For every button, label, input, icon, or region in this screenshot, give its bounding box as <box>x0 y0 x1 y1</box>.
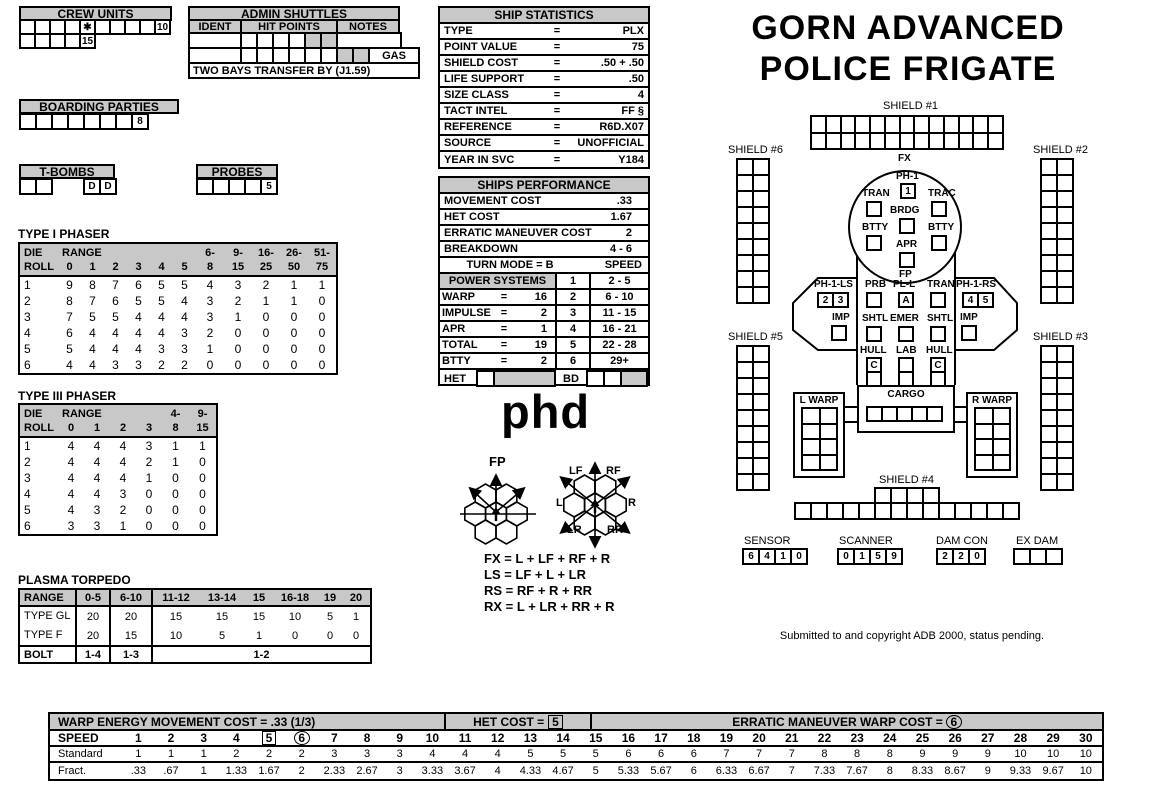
shield-box[interactable] <box>738 192 752 206</box>
shield-box[interactable] <box>738 459 752 473</box>
fract-values: .33.6711.331.6722.332.6733.333.6744.334.… <box>122 763 1102 779</box>
speed-cell: 5 <box>579 747 612 761</box>
shield-box[interactable] <box>901 117 914 132</box>
performance-rows: MOVEMENT COST.33HET COST1.67ERRATIC MANE… <box>440 194 648 258</box>
shield-box[interactable] <box>821 440 837 454</box>
shield-box[interactable] <box>1004 504 1018 518</box>
speed-cell: 3.67 <box>449 763 482 779</box>
stat-row: BREAKDOWN4 - 6 <box>440 242 648 258</box>
speed-cell: 3 <box>318 747 351 761</box>
shield-box[interactable] <box>1058 224 1072 238</box>
plasma-wide-header: 11-12 13-14 15 16-18 19 20 <box>151 590 370 605</box>
speed-cell: 5 <box>579 763 612 779</box>
speed-cell: 6 <box>612 747 645 761</box>
shield-box[interactable] <box>754 411 768 425</box>
emer-label: EMER <box>890 314 919 324</box>
speed-cell: 4 <box>449 747 482 761</box>
shield-box[interactable] <box>876 489 890 502</box>
trac-label: TRAC <box>928 189 956 199</box>
shield-box[interactable] <box>1058 395 1072 409</box>
tran-box[interactable] <box>866 201 882 217</box>
shield-box[interactable] <box>738 240 752 254</box>
scanner-label: SCANNER <box>839 536 893 547</box>
speed-cell: 2 <box>220 747 253 761</box>
speed-cell: 9 <box>906 747 939 761</box>
tran-mid-box[interactable] <box>930 292 946 308</box>
rwarp-label: R WARP <box>968 396 1016 406</box>
speed-cell: 2 <box>253 747 286 761</box>
speed-cell: 7 <box>743 747 776 761</box>
exdam-label: EX DAM <box>1016 536 1058 547</box>
shield-box[interactable] <box>1058 192 1072 206</box>
shield-box[interactable] <box>754 176 768 190</box>
shield-box[interactable] <box>871 117 884 132</box>
speed-cell: 5.33 <box>612 763 645 779</box>
bolt-0-5: 1-4 <box>75 647 109 662</box>
prb-box[interactable] <box>866 292 882 308</box>
track-box[interactable]: 10 <box>154 19 171 35</box>
speed-cell: 21 <box>775 731 808 745</box>
shield-box[interactable] <box>994 409 1010 423</box>
erratic-header: ERRATIC MANEUVER WARP COST = 6 <box>592 714 1102 729</box>
arc-lr-label: LR <box>567 525 582 535</box>
shield-box[interactable] <box>1058 459 1072 473</box>
shield-box[interactable] <box>940 504 954 518</box>
shield-box[interactable] <box>842 134 855 149</box>
imp-left-label: IMP <box>832 313 850 323</box>
shield-box[interactable] <box>1042 475 1056 489</box>
shield-box[interactable] <box>754 208 768 222</box>
brdg-box[interactable] <box>899 218 915 234</box>
shield-box[interactable] <box>1042 160 1056 174</box>
hull-right-label: HULL <box>926 346 953 356</box>
lwarp-label: L WARP <box>795 396 843 406</box>
shield-box[interactable] <box>738 395 752 409</box>
emer-box[interactable] <box>898 326 914 342</box>
ship-statistics-title: SHIP STATISTICS <box>440 8 648 24</box>
track-box[interactable] <box>35 178 53 195</box>
shield-box[interactable] <box>924 489 938 502</box>
shield-box[interactable] <box>754 395 768 409</box>
speed-cell: 5.67 <box>645 763 678 779</box>
track-box[interactable] <box>926 406 943 422</box>
speed-cell: 8 <box>841 747 874 761</box>
plasma-col-6-10: 6-10 <box>109 590 151 605</box>
shield-box[interactable] <box>1042 411 1056 425</box>
speed-cell: 6 <box>677 763 710 779</box>
shield-box[interactable] <box>901 134 914 149</box>
shield-box[interactable] <box>754 379 768 393</box>
shield-box[interactable] <box>1058 379 1072 393</box>
value: 10 <box>273 611 317 623</box>
speed-cell: 2 <box>285 763 318 779</box>
shield-box[interactable] <box>738 347 752 361</box>
speed-range-row: 416 - 21 <box>557 322 648 338</box>
speed-cell: 28 <box>1004 731 1037 745</box>
imp-right-box[interactable] <box>961 325 977 341</box>
apr-box[interactable] <box>899 252 915 268</box>
shield-box[interactable] <box>1058 363 1072 377</box>
speed-cell: 17 <box>645 731 678 745</box>
speed-cell: 8.67 <box>939 763 972 779</box>
shield3-label: SHIELD #3 <box>1033 332 1088 343</box>
speed-cell: 9 <box>383 731 416 745</box>
boarding-parties-row: 8 <box>19 113 147 130</box>
btty-left-box[interactable] <box>866 235 882 251</box>
speed-cell: 9 <box>971 747 1004 761</box>
shield-box[interactable] <box>796 504 810 518</box>
shield-box[interactable] <box>812 117 825 132</box>
btty-right-box[interactable] <box>931 235 947 251</box>
shield-box[interactable] <box>1058 288 1072 302</box>
bolt-rest: 1-2 <box>151 647 370 662</box>
speed-cell: 4 <box>481 763 514 779</box>
shield-box[interactable] <box>856 134 869 149</box>
track-box[interactable]: 5 <box>260 178 278 195</box>
shield-box[interactable] <box>1058 475 1072 489</box>
stat-row: SHIELD COST=.50 + .50 <box>440 56 648 72</box>
shield-box[interactable] <box>827 117 840 132</box>
shield-box[interactable] <box>754 160 768 174</box>
value: 20 <box>125 611 137 623</box>
power-systems-column: POWER SYSTEMS WARP=16IMPULSE=2APR=1TOTAL… <box>440 274 557 370</box>
phaser-table-header: DIERANGE4-9-ROLL0123815 <box>20 405 216 438</box>
ship-title: GORN ADVANCED POLICE FRIGATE <box>728 8 1088 90</box>
track-box[interactable]: 0 <box>790 548 808 565</box>
pl-l-label: PL-L <box>893 280 915 290</box>
arc-rf-label: RF <box>606 466 621 476</box>
speed-cell: 8 <box>808 747 841 761</box>
shield-box[interactable] <box>930 134 943 149</box>
shield-box[interactable] <box>908 489 922 502</box>
track-box[interactable]: 0 <box>968 548 986 565</box>
ph1-ls-label: PH-1-LS <box>814 280 853 290</box>
crew-units-row2: 15 <box>19 33 94 49</box>
value: 15 <box>245 611 273 623</box>
exdam-track <box>1013 548 1061 565</box>
shield-box[interactable] <box>738 224 752 238</box>
shield-box[interactable] <box>915 134 928 149</box>
shield1-grid <box>810 115 1004 150</box>
ship-title-line1: GORN ADVANCED <box>728 8 1088 49</box>
plasma-bolt-row: BOLT 1-4 1-3 1-2 <box>20 645 370 662</box>
type3-phaser-table: DIERANGE4-9-ROLL012381514443112444210344… <box>18 403 218 536</box>
shield-box[interactable] <box>1042 176 1056 190</box>
plasma-col-0-5: 0-5 <box>75 590 109 605</box>
shield-box[interactable] <box>876 504 890 518</box>
plasma-col-16-18: 16-18 <box>273 592 317 604</box>
boarding-parties-header: BOARDING PARTIES <box>19 99 179 114</box>
arc-formulas: FX = L + LF + RF + R LS = LF + L + LR RS… <box>484 551 615 615</box>
shield-box[interactable] <box>1042 272 1056 286</box>
shield-box[interactable] <box>842 117 855 132</box>
shield-box[interactable] <box>754 443 768 457</box>
het-cost-header: HET COST = 5 <box>446 714 592 729</box>
shield-box[interactable] <box>754 363 768 377</box>
shield-box[interactable] <box>821 425 837 439</box>
phd-text: phd <box>501 388 590 435</box>
speed-cell: 7.33 <box>808 763 841 779</box>
shtl-left-box[interactable] <box>866 326 882 342</box>
shield-box[interactable] <box>956 504 970 518</box>
shield-box[interactable] <box>738 475 752 489</box>
speed-cell: 4.67 <box>547 763 580 779</box>
ph1-box[interactable]: 1 <box>900 183 916 199</box>
plasma-wide-values: 15 15 15 10 5 1 10 5 1 0 0 0 <box>151 607 370 645</box>
speed-cell: 24 <box>873 731 906 745</box>
lab-label: LAB <box>896 346 917 356</box>
shield-box[interactable] <box>1042 427 1056 441</box>
shield-box[interactable] <box>860 504 874 518</box>
shield-box[interactable] <box>738 427 752 441</box>
shield-box[interactable] <box>974 134 987 149</box>
shield-box[interactable] <box>1042 363 1056 377</box>
shield-box[interactable] <box>1058 427 1072 441</box>
speed-range-row: 26 - 10 <box>557 290 648 306</box>
shield-box[interactable] <box>754 288 768 302</box>
shield-box[interactable] <box>945 117 958 132</box>
ships-performance-panel: SHIPS PERFORMANCE MOVEMENT COST.33HET CO… <box>438 176 650 386</box>
shield-box[interactable] <box>754 240 768 254</box>
speed-cell: 1.67 <box>253 763 286 779</box>
shield-box[interactable] <box>754 347 768 361</box>
cargo-boxes <box>866 406 941 422</box>
speed-cell: 12 <box>481 731 514 745</box>
shield-box[interactable] <box>886 134 899 149</box>
track-box[interactable]: 8 <box>131 113 149 130</box>
shield-box[interactable] <box>827 134 840 149</box>
shield-box[interactable] <box>994 440 1010 454</box>
shield-box[interactable] <box>886 117 899 132</box>
stat-row: IMPULSE=2 <box>440 306 555 322</box>
value: 5 <box>199 630 245 642</box>
shield-box[interactable] <box>738 176 752 190</box>
value: 20 <box>87 630 99 642</box>
shield-box[interactable] <box>1042 256 1056 270</box>
tran-label: TRAN <box>862 189 890 199</box>
speed-cell: 19 <box>710 731 743 745</box>
shield-box[interactable] <box>974 117 987 132</box>
phaser-table-body: 1987655432112876554321103755444310004644… <box>20 277 336 373</box>
shield3-grid <box>1040 345 1074 491</box>
type-f-label: TYPE F <box>24 627 75 644</box>
track-box[interactable]: D <box>99 178 117 195</box>
speed-cell: 9.33 <box>1004 763 1037 779</box>
speed-cell: 29 <box>1037 731 1070 745</box>
shield-box[interactable] <box>754 256 768 270</box>
plasma-col2-values: 20 15 <box>109 607 151 645</box>
stat-row: HET COST1.67 <box>440 210 648 226</box>
shield-box[interactable] <box>1042 347 1056 361</box>
plasma-col-13-14: 13-14 <box>199 592 245 604</box>
shield-box[interactable] <box>892 489 906 502</box>
value: 5 <box>317 611 343 623</box>
probes-header: PROBES <box>196 164 278 179</box>
shield-box[interactable] <box>812 504 826 518</box>
turn-mode-label: TURN MODE = B <box>440 259 580 271</box>
shield-box[interactable] <box>976 409 992 423</box>
bolt-6-10: 1-3 <box>109 647 151 662</box>
shield-box[interactable] <box>989 134 1002 149</box>
probes-row: 5 <box>196 178 276 195</box>
shield-box[interactable] <box>754 272 768 286</box>
ph1-ls-box-3[interactable]: 3 <box>832 292 849 308</box>
shield-box[interactable] <box>754 192 768 206</box>
shield4-label: SHIELD #4 <box>879 475 934 486</box>
shield-box[interactable] <box>945 134 958 149</box>
trac-box[interactable] <box>931 201 947 217</box>
shield1-label: SHIELD #1 <box>883 101 938 112</box>
shield-box[interactable] <box>1042 192 1056 206</box>
shield-box[interactable] <box>1058 411 1072 425</box>
speed-cell: 27 <box>971 731 1004 745</box>
shield-box[interactable] <box>1042 224 1056 238</box>
shield-box[interactable] <box>1058 176 1072 190</box>
shield-box[interactable] <box>1042 395 1056 409</box>
turn-mode-row: TURN MODE = B SPEED <box>440 258 648 274</box>
shield-box[interactable] <box>821 409 837 423</box>
shield-box[interactable] <box>994 425 1010 439</box>
ships-performance-title: SHIPS PERFORMANCE <box>440 178 648 194</box>
speed-values: 1234567891011121314151617181920212223242… <box>122 731 1102 745</box>
ph1-rs-box-5[interactable]: 5 <box>977 292 994 308</box>
scanner-track: 0159 <box>837 548 901 565</box>
fract-row-label: Fract. <box>50 765 122 777</box>
tran-mid-label: TRAN <box>927 280 955 290</box>
ssd-sheet: CREW UNITS ✱10 15 ADMIN SHUTTLES IDENT H… <box>0 0 1150 800</box>
shield-box[interactable] <box>738 208 752 222</box>
shield2-label: SHIELD #2 <box>1033 145 1088 156</box>
shield-box[interactable] <box>1042 240 1056 254</box>
speed-cell: 7 <box>318 731 351 745</box>
shield-box[interactable] <box>871 134 884 149</box>
fp-arc-label: FP <box>489 456 506 468</box>
shield-box[interactable] <box>828 504 842 518</box>
shield-box[interactable] <box>1058 256 1072 270</box>
arc-lf-label: LF <box>569 466 582 476</box>
shield-box[interactable] <box>812 134 825 149</box>
shield-box[interactable] <box>1058 347 1072 361</box>
shield-box[interactable] <box>754 459 768 473</box>
shield-box[interactable] <box>924 504 938 518</box>
shield-box[interactable] <box>930 117 943 132</box>
ph1-ls-boxes: 2 3 <box>817 292 847 308</box>
shield-box[interactable] <box>1042 443 1056 457</box>
speed-cell: 10 <box>1004 747 1037 761</box>
speed-cell: 18 <box>677 731 710 745</box>
speed-cell: 25 <box>906 731 939 745</box>
shield-box[interactable] <box>803 409 819 423</box>
fx-arc-label: FX <box>898 154 911 164</box>
fx-formula: FX = L + LF + RF + R <box>484 551 615 567</box>
speed-cell: 6.33 <box>710 763 743 779</box>
shield-box[interactable] <box>738 160 752 174</box>
power-systems-title: POWER SYSTEMS <box>440 274 555 290</box>
track-box[interactable] <box>1045 548 1063 565</box>
sensor-label: SENSOR <box>744 536 790 547</box>
speed-cell: 6 <box>645 747 678 761</box>
shield-box[interactable] <box>976 440 992 454</box>
speed-cell: 22 <box>808 731 841 745</box>
speed-cell: .33 <box>122 763 155 779</box>
shield-box[interactable] <box>856 117 869 132</box>
shield-box[interactable] <box>1042 208 1056 222</box>
shield-box[interactable] <box>844 504 858 518</box>
shield-box[interactable] <box>994 456 1010 470</box>
shtl-right-label: SHTL <box>927 314 953 324</box>
shield-box[interactable] <box>1042 379 1056 393</box>
shield-box[interactable] <box>1058 272 1072 286</box>
ph1-label: PH-1 <box>896 172 919 182</box>
shield-box[interactable] <box>976 456 992 470</box>
shield-box[interactable] <box>754 475 768 489</box>
shield-box[interactable] <box>738 363 752 377</box>
imp-left-box[interactable] <box>831 325 847 341</box>
shield-box[interactable] <box>892 504 906 518</box>
shield-box[interactable] <box>803 425 819 439</box>
shield-box[interactable] <box>1058 208 1072 222</box>
stat-row: YEAR IN SVC=Y184 <box>440 152 648 168</box>
shield-box[interactable] <box>738 256 752 270</box>
shield-box[interactable] <box>960 134 973 149</box>
shield-box[interactable] <box>754 427 768 441</box>
speed-cell: 1 <box>155 747 188 761</box>
shield-box[interactable] <box>738 288 752 302</box>
plasma-col-19: 19 <box>317 592 343 604</box>
stat-row: TYPE=PLX <box>440 24 648 40</box>
shield-box[interactable] <box>1058 160 1072 174</box>
speed-cell: 7 <box>710 747 743 761</box>
shield-box[interactable] <box>738 443 752 457</box>
shield-box[interactable] <box>1058 443 1072 457</box>
speed-row-label: SPEED <box>50 731 122 745</box>
t-bombs-left <box>19 178 51 195</box>
track-box[interactable]: 9 <box>885 548 903 565</box>
shield-box[interactable] <box>1042 288 1056 302</box>
shield-box[interactable] <box>738 379 752 393</box>
fp-arc-diagram <box>458 468 538 552</box>
pl-l-box[interactable]: A <box>898 292 914 308</box>
shield-box[interactable] <box>754 224 768 238</box>
shield-box[interactable] <box>908 504 922 518</box>
shield-box[interactable] <box>915 117 928 132</box>
shield-box[interactable] <box>738 411 752 425</box>
shield-box[interactable] <box>989 117 1002 132</box>
lab-boxes <box>898 357 914 385</box>
shield2-grid <box>1040 158 1074 304</box>
shield-box[interactable] <box>738 272 752 286</box>
bolt-label: BOLT <box>20 649 75 661</box>
speed-range-row: 12 - 5 <box>557 274 648 290</box>
shield-box[interactable] <box>972 504 986 518</box>
shield-box[interactable] <box>821 456 837 470</box>
speed-cell: 5 <box>547 747 580 761</box>
shield5-grid <box>736 345 770 491</box>
plasma-range-header: RANGE <box>20 592 75 604</box>
speed-column-header: SPEED <box>580 259 648 271</box>
shield-box[interactable] <box>1042 459 1056 473</box>
shield-box[interactable] <box>803 440 819 454</box>
shield-box[interactable] <box>988 504 1002 518</box>
shield-box[interactable] <box>1058 240 1072 254</box>
shield-box[interactable] <box>960 117 973 132</box>
shield6-label: SHIELD #6 <box>728 145 783 156</box>
shield-box[interactable] <box>976 425 992 439</box>
speed-cell: 8 <box>873 747 906 761</box>
track-box[interactable]: 15 <box>79 33 96 49</box>
shield-box[interactable] <box>803 456 819 470</box>
shtl-right-box[interactable] <box>930 326 946 342</box>
